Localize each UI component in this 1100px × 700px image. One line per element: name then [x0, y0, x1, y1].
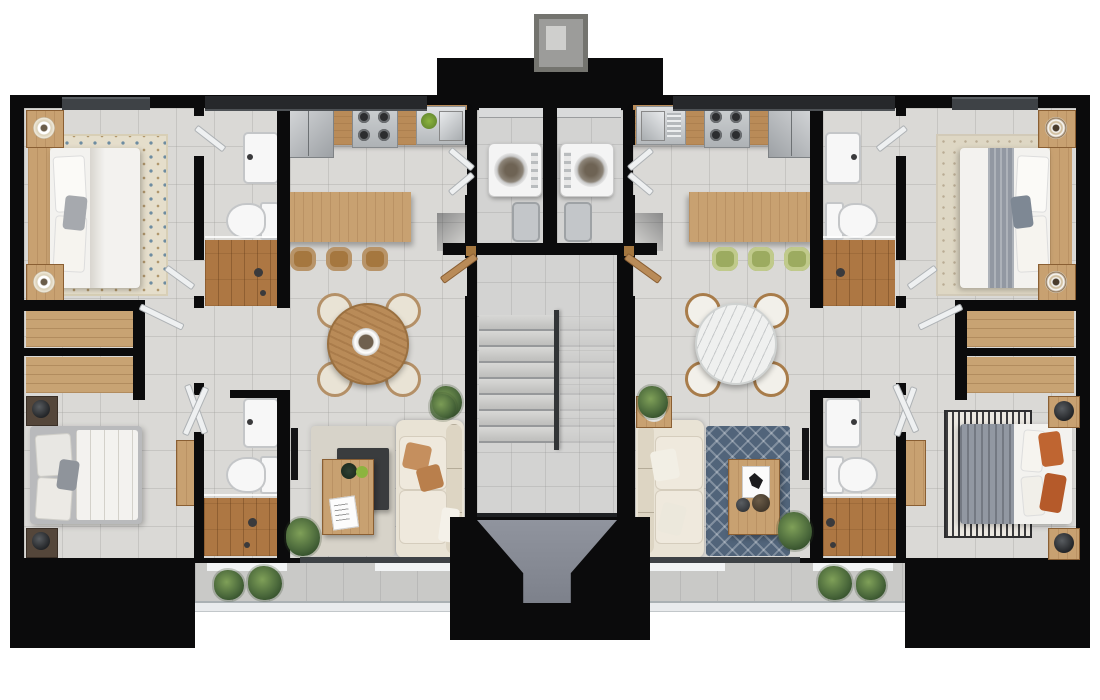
window-recess — [952, 97, 1038, 110]
island-counter-right — [689, 192, 815, 242]
burner — [378, 111, 390, 123]
stair-tread — [560, 427, 615, 443]
stair-tread — [560, 395, 615, 411]
staircase-treads-upper — [479, 315, 556, 445]
stair-shaft-wall-east — [623, 110, 635, 145]
wall-bath1L-kitchen — [277, 108, 290, 308]
shower-drain — [244, 542, 250, 548]
terrace-left-railing — [195, 601, 457, 612]
wall-bed1L-bath — [194, 156, 204, 260]
stair-tread — [479, 315, 556, 331]
wall-bed1L-bath — [194, 108, 204, 116]
wall-bath2R-north — [823, 390, 870, 398]
table-lamp — [33, 117, 55, 139]
table-vase-brown — [752, 494, 770, 512]
stair-tread — [560, 363, 615, 379]
bar-stool-wood — [290, 247, 316, 271]
table-vase — [341, 463, 357, 479]
faucet — [247, 154, 253, 160]
burner — [358, 129, 370, 141]
wall-bed1L-bath — [194, 296, 204, 308]
fridge-right-split — [791, 104, 792, 156]
dining-centerpiece-left — [352, 328, 380, 356]
laundry-basket-right — [564, 202, 592, 242]
laundry-shelf-left — [479, 108, 543, 118]
burner — [378, 129, 390, 141]
potted-plant-right-stair — [638, 386, 668, 418]
laundry-divider-wall — [543, 95, 557, 243]
staircase-treads-lower-faint — [560, 315, 615, 445]
shower-fixture — [826, 518, 835, 527]
stair-tread — [479, 347, 556, 363]
kitchen-sink-left — [416, 106, 466, 145]
shower-fixture — [248, 518, 257, 527]
wall-bed1R-south — [964, 300, 1076, 311]
tv-living-right — [802, 428, 809, 480]
stair-tread — [479, 427, 556, 443]
orange-pillow — [1038, 431, 1065, 468]
kitchen-sink-right — [636, 106, 686, 145]
terrace-plant — [214, 570, 244, 600]
gray-runner-blanket — [988, 148, 1014, 288]
stair-tread — [560, 411, 615, 427]
stair-tread — [479, 411, 556, 427]
book-graphic — [749, 473, 763, 489]
washer-drum — [574, 153, 608, 187]
burner — [730, 129, 742, 141]
wall-niche-right — [955, 300, 967, 400]
potted-plant — [430, 394, 456, 420]
throw-pillow-white — [650, 448, 681, 482]
stair-tread — [479, 395, 556, 411]
duvet-fold — [90, 148, 140, 288]
wall-bed2R-hall — [896, 432, 906, 558]
laundry-shelf-right — [557, 108, 621, 118]
window-recess — [62, 97, 150, 110]
island-counter-left — [285, 192, 411, 242]
burner — [710, 111, 722, 123]
faucet — [851, 419, 857, 425]
wall-bed2L-hall — [194, 432, 204, 558]
potted-plant-corner-right — [778, 512, 812, 550]
herb-plant — [421, 113, 437, 129]
terrace-plant — [818, 566, 852, 600]
shower-drain — [830, 542, 836, 548]
faucet — [247, 419, 253, 425]
tv-living-left — [291, 428, 298, 480]
bathroom-sink — [825, 398, 861, 448]
stair-tread — [560, 379, 615, 395]
terrace-right-railing — [643, 601, 905, 612]
bar-stool-wood — [326, 247, 352, 271]
dining-centerpiece-right — [722, 330, 746, 354]
wall-bath2L-north — [230, 390, 277, 398]
stove-left — [352, 106, 398, 148]
glass-partition — [823, 494, 896, 496]
stair-tread — [479, 379, 556, 395]
terrace-plant — [856, 570, 886, 600]
threshold-strip — [645, 563, 725, 571]
threshold-strip — [375, 563, 455, 571]
wall-wardrobe-divider-right — [967, 348, 1076, 356]
dark-lamp — [32, 400, 50, 418]
wall-bed1R-bath — [896, 108, 906, 116]
bar-stool-green — [784, 247, 810, 271]
wardrobe-left-b — [26, 357, 133, 393]
shower-floor-left-bottom — [204, 498, 277, 556]
shower-floor-right-top — [823, 240, 895, 306]
wardrobe-right-b — [967, 357, 1074, 393]
washer-right — [560, 143, 614, 197]
magazine — [329, 495, 359, 530]
toilet-bowl — [226, 203, 266, 239]
target-lamp — [1045, 271, 1067, 293]
toilet-bowl — [838, 203, 878, 239]
stair-tread — [560, 315, 615, 331]
stair-railing — [554, 310, 559, 450]
stair-shaft-wall-east — [623, 296, 635, 520]
bed-right-bottom — [960, 424, 1072, 524]
wardrobe-right-a — [967, 311, 1074, 347]
bar-stool-green — [712, 247, 738, 271]
stair-tread — [479, 331, 556, 347]
bed-right-top — [960, 148, 1050, 288]
fridge-left-split — [308, 104, 309, 156]
glass-partition — [823, 236, 895, 238]
wall-bed1R-bath — [896, 156, 906, 260]
bed-left-bottom — [30, 426, 142, 524]
bathroom-sink — [243, 132, 279, 184]
art-book — [742, 466, 770, 498]
wall-bath1R-kitchen — [810, 108, 823, 308]
washer-drum — [494, 153, 528, 187]
wardrobe-left-a — [26, 311, 133, 347]
dark-lamp — [32, 532, 50, 550]
washer-controls — [531, 152, 538, 188]
toilet-bowl — [838, 457, 878, 493]
stair-shaft-wall-west — [465, 296, 477, 520]
stair-shaft-wall-west — [465, 110, 477, 145]
glass-partition — [205, 236, 277, 238]
window-recess-kitchen-right — [673, 96, 895, 111]
wall-niche-left — [133, 300, 145, 400]
stair-tread — [560, 331, 615, 347]
potted-plant-corner-left — [286, 518, 320, 556]
dark-lamp — [1054, 401, 1074, 421]
target-lamp — [1045, 117, 1067, 139]
bathroom-sink — [243, 398, 279, 448]
duvet-white — [76, 430, 138, 520]
drying-rack — [667, 113, 681, 137]
washer-left — [488, 143, 542, 197]
table-vase-dark — [736, 498, 750, 512]
dark-lamp — [1054, 533, 1074, 553]
table-plant-sprig — [356, 466, 368, 478]
stair-tread — [479, 363, 556, 379]
wall-bed1R-bath — [896, 296, 906, 308]
table-lamp — [33, 271, 55, 293]
burner — [730, 111, 742, 123]
bathroom-sink — [825, 132, 861, 184]
bar-stool-green — [748, 247, 774, 271]
burner — [358, 111, 370, 123]
orange-pillow — [1039, 472, 1067, 513]
bottom-right-wall-mass — [905, 555, 1090, 648]
faucet — [851, 154, 857, 160]
shower-drain — [260, 290, 266, 296]
window-recess-kitchen-left — [205, 96, 427, 111]
shower-fixture — [254, 268, 263, 277]
stair-tread — [560, 347, 615, 363]
glass-partition — [204, 494, 277, 496]
throw-pillow-gray — [62, 195, 87, 231]
wall-wardrobe-divider-left — [24, 348, 133, 356]
throw-pillow-blue-gray — [1010, 195, 1034, 229]
bottom-left-wall-mass — [10, 555, 195, 648]
side-cabinet-right — [904, 440, 926, 506]
toilet-bowl — [226, 457, 266, 493]
burner — [710, 129, 722, 141]
fridge-left — [285, 104, 334, 158]
throw-pillow-gray — [56, 459, 80, 491]
sink-basin — [439, 111, 463, 141]
terrace-plant — [248, 566, 282, 600]
stove-right — [704, 106, 750, 148]
gray-drape-blanket — [960, 424, 1014, 524]
sink-basin — [641, 111, 665, 141]
bar-stool-wood — [362, 247, 388, 271]
laundry-basket-left — [512, 202, 540, 242]
washer-controls — [564, 152, 571, 188]
wall-bed1L-south — [24, 300, 136, 311]
floor-plan-render — [0, 0, 1100, 700]
shower-fixture — [836, 268, 845, 277]
chimney-cap-inner — [546, 26, 566, 50]
shower-floor-left-top — [205, 240, 277, 306]
